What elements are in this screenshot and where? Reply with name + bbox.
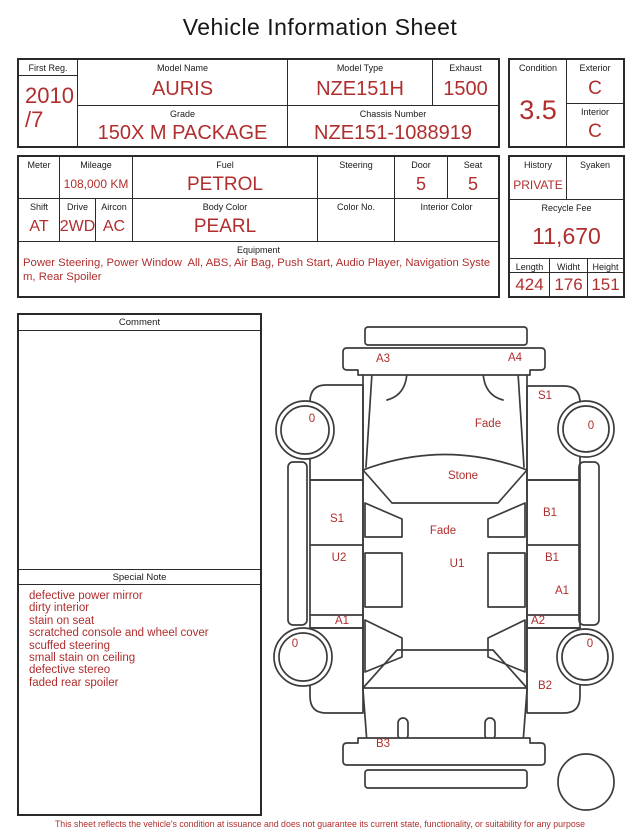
seat-label: Seat [448, 157, 498, 171]
car-diagram: A3A4S10Fade0StoneS1B1FadeU2U1B1A1A1A200B… [268, 313, 640, 818]
steering-label: Steering [318, 157, 394, 171]
special-note-item: scratched console and wheel cover [29, 627, 256, 639]
spec-table: Meter Mileage 108,000 KM Fuel PETROL Ste… [17, 155, 500, 298]
diagram-label: 0 [292, 638, 298, 650]
body-color-label: Body Color [133, 199, 317, 213]
fuel-label: Fuel [133, 157, 317, 171]
color-no-label: Color No. [318, 199, 394, 213]
diagram-label: S1 [538, 390, 552, 402]
left-front-door [365, 503, 402, 537]
grade-label: Grade [78, 106, 287, 120]
special-note-item: dirty interior [29, 602, 256, 614]
door-label: Door [395, 157, 447, 171]
steering-value [318, 171, 394, 198]
equipment-value: Power Steering, Power Window All, ABS, A… [19, 254, 498, 296]
diagram-label: A4 [508, 352, 523, 364]
left-rear-door [365, 553, 402, 607]
syaken-cell: Syaken [566, 157, 623, 199]
vehicle-information-sheet: Vehicle Information Sheet First Reg. 201… [0, 0, 640, 835]
mileage-value: 108,000 KM [60, 171, 132, 198]
diagram-label: Fade [430, 525, 456, 537]
interior-label: Interior [567, 104, 623, 118]
grade-value: 150X M PACKAGE [78, 120, 287, 146]
interior-color-label: Interior Color [395, 199, 498, 213]
chassis-number-value: NZE151-1088919 [288, 120, 498, 146]
length-cell: Length 424 [510, 259, 549, 296]
model-type-value: NZE151H [288, 74, 432, 105]
interior-cell: Interior C [566, 103, 623, 146]
diagram-label: A2 [531, 615, 545, 627]
equipment-label: Equipment [19, 241, 498, 254]
exhaust-value: 1500 [433, 74, 498, 105]
footer-disclaimer: This sheet reflects the vehicle's condit… [0, 819, 640, 829]
windshield [363, 455, 527, 504]
diagram-label: Stone [448, 470, 478, 482]
syaken-label: Syaken [567, 157, 623, 171]
length-label: Length [510, 259, 549, 273]
recycle-fee-label: Recycle Fee [510, 200, 623, 214]
front-left-wheel [276, 401, 334, 459]
page-title: Vehicle Information Sheet [0, 14, 640, 41]
recycle-fee-cell: Recycle Fee 11,670 [510, 199, 623, 258]
diagram-label: 0 [587, 638, 593, 650]
height-label: Height [588, 259, 623, 273]
comment-body [19, 331, 260, 569]
model-type-cell: Model Type NZE151H [287, 60, 432, 105]
special-note-item: defective power mirror [29, 590, 256, 602]
first-reg-label: First Reg. [19, 60, 77, 76]
condition-table: Condition 3.5 Exterior C Interior C [508, 58, 625, 148]
drive-value: 2WD [60, 213, 95, 241]
aircon-label: Aircon [96, 199, 132, 213]
meter-value [19, 171, 59, 198]
shift-cell: Shift AT [19, 198, 59, 241]
right-front-door [488, 503, 525, 537]
recycle-fee-value: 11,670 [510, 214, 623, 258]
right-headlight [483, 372, 503, 400]
steering-cell: Steering [317, 157, 394, 198]
rear-bumper [343, 738, 545, 765]
diagram-label: A3 [376, 353, 390, 365]
right-sill [579, 462, 599, 625]
door-value: 5 [395, 171, 447, 198]
mileage-label: Mileage [60, 157, 132, 171]
condition-label: Condition [510, 60, 566, 74]
color-no-value [318, 213, 394, 241]
meter-cell: Meter [19, 157, 59, 198]
special-note-item: small stain on ceiling [29, 652, 256, 664]
special-note-item: stain on seat [29, 615, 256, 627]
left-headlight [387, 372, 407, 400]
interior-value: C [567, 118, 623, 146]
model-name-value: AURIS [78, 74, 287, 105]
syaken-value [567, 171, 623, 199]
condition-value: 3.5 [510, 74, 566, 146]
body-color-value: PEARL [133, 213, 317, 241]
aircon-value: AC [96, 213, 132, 241]
color-no-cell: Color No. [317, 198, 394, 241]
model-name-cell: Model Name AURIS [77, 60, 287, 105]
width-label: Widht [550, 259, 587, 273]
exhaust-label: Exhaust [433, 60, 498, 74]
first-reg-value: 2010 /7 [19, 76, 77, 146]
rear-window [363, 650, 527, 688]
seat-cell: Seat 5 [447, 157, 498, 198]
first-reg-month: /7 [25, 108, 77, 132]
fuel-cell: Fuel PETROL [132, 157, 317, 198]
comment-box: Comment Special Note defective power mir… [17, 313, 262, 816]
height-cell: Height 151 [587, 259, 623, 296]
diagram-label: U1 [450, 558, 465, 570]
aircon-cell: Aircon AC [95, 198, 132, 241]
left-sill [288, 462, 307, 625]
model-name-label: Model Name [78, 60, 287, 74]
diagram-label: 0 [588, 420, 594, 432]
shift-value: AT [19, 213, 59, 241]
diagram-label: B3 [376, 738, 390, 750]
exterior-value: C [567, 74, 623, 103]
diagram-label: B1 [545, 552, 559, 564]
special-note-list: defective power mirrordirty interiorstai… [19, 585, 260, 689]
front-right-wheel [558, 401, 614, 457]
mileage-cell: Mileage 108,000 KM [59, 157, 132, 198]
drive-label: Drive [60, 199, 95, 213]
diagram-label: U2 [332, 552, 347, 564]
length-value: 424 [510, 273, 549, 296]
meter-label: Meter [19, 157, 59, 171]
special-note-item: faded rear spoiler [29, 677, 256, 689]
chassis-number-cell: Chassis Number NZE151-1088919 [287, 105, 498, 146]
diagram-label: A1 [555, 585, 569, 597]
first-reg-year: 2010 [25, 84, 77, 108]
diagram-label: B1 [543, 507, 557, 519]
rear-left-wheel [274, 628, 332, 686]
diagram-label: 0 [309, 413, 315, 425]
grade-cell: Grade 150X M PACKAGE [77, 105, 287, 146]
comment-label: Comment [19, 315, 260, 331]
shift-label: Shift [19, 199, 59, 213]
header-table: First Reg. 2010 /7 Model Name AURIS Mode… [17, 58, 500, 148]
right-rear-door [488, 553, 525, 607]
diagram-label: B2 [538, 680, 552, 692]
interior-color-value [395, 213, 498, 241]
drive-cell: Drive 2WD [59, 198, 95, 241]
spare-tire [558, 754, 614, 810]
door-cell: Door 5 [394, 157, 447, 198]
fees-table: History PRIVATE Syaken Recycle Fee 11,67… [508, 155, 625, 298]
rear-right-wheel [557, 629, 613, 685]
exhaust-cell: Exhaust 1500 [432, 60, 498, 105]
left-tail-light [398, 718, 408, 740]
width-cell: Widht 176 [549, 259, 587, 296]
model-type-label: Model Type [288, 60, 432, 74]
height-value: 151 [588, 273, 623, 296]
first-reg-cell: First Reg. 2010 /7 [19, 60, 77, 146]
right-tail-light [485, 718, 495, 740]
interior-color-cell: Interior Color [394, 198, 498, 241]
history-value: PRIVATE [510, 171, 566, 199]
special-note-item: defective stereo [29, 664, 256, 676]
history-label: History [510, 157, 566, 171]
body-color-cell: Body Color PEARL [132, 198, 317, 241]
diagram-label: Fade [475, 418, 501, 430]
front-strip [365, 327, 527, 345]
history-cell: History PRIVATE [510, 157, 566, 199]
seat-value: 5 [448, 171, 498, 198]
special-note-label: Special Note [19, 569, 260, 585]
fuel-value: PETROL [133, 171, 317, 198]
special-note-item: scuffed steering [29, 640, 256, 652]
chassis-number-label: Chassis Number [288, 106, 498, 120]
exterior-label: Exterior [567, 60, 623, 74]
width-value: 176 [550, 273, 587, 296]
car-body [363, 370, 527, 743]
diagram-label: A1 [335, 615, 349, 627]
condition-cell: Condition 3.5 [510, 60, 566, 146]
diagram-label: S1 [330, 513, 344, 525]
exterior-cell: Exterior C [566, 60, 623, 103]
rear-strip [365, 770, 527, 788]
diagram-labels: A3A4S10Fade0StoneS1B1FadeU2U1B1A1A1A200B… [292, 352, 594, 750]
